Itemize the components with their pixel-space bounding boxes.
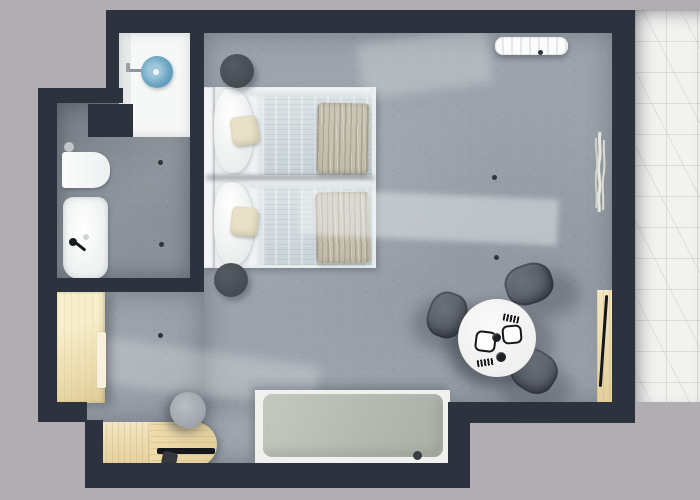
floor-dot xyxy=(492,175,497,180)
wardrobe-handle xyxy=(97,332,106,388)
bed-left-throw-blanket xyxy=(316,103,369,175)
bed-right-pillow xyxy=(230,206,260,238)
toilet-flush-button xyxy=(64,142,74,152)
wall-step-left-vertical xyxy=(85,420,103,488)
wall-bathroom-bottom xyxy=(38,278,204,292)
floor-plan xyxy=(0,0,700,500)
wall-top xyxy=(106,10,635,33)
wall-bathroom-stub xyxy=(88,104,133,137)
nightstand-bottom xyxy=(214,263,248,297)
terrace-marble-floor xyxy=(635,10,700,402)
desk-chair xyxy=(170,392,206,428)
beds-gap-shadow xyxy=(206,175,374,180)
wall-right xyxy=(612,10,635,423)
shower-knob xyxy=(83,234,89,240)
bed-left-pillow xyxy=(229,114,260,146)
floor-dot xyxy=(158,333,163,338)
radiator xyxy=(495,37,568,55)
floor-dot xyxy=(494,255,499,260)
wall-bottom-right xyxy=(470,402,635,423)
basin-drain xyxy=(153,69,159,75)
wall-bathroom-separator xyxy=(190,33,204,292)
wall-bottom xyxy=(103,463,470,488)
floor-dot xyxy=(159,242,164,247)
floor-dot xyxy=(538,50,543,55)
basin-faucet-knob xyxy=(126,63,130,72)
wall-left xyxy=(38,88,57,418)
toilet xyxy=(62,152,110,188)
floor-dot xyxy=(158,160,163,165)
plate xyxy=(501,324,523,345)
desk-side-panel xyxy=(100,422,152,467)
cup xyxy=(492,333,501,342)
plant-icon xyxy=(590,130,610,214)
daybed-cushion xyxy=(263,394,443,457)
nightstand-top xyxy=(220,54,254,88)
wall-vanity-left xyxy=(106,10,119,103)
daybed-knob xyxy=(413,451,422,460)
cup xyxy=(496,352,506,362)
